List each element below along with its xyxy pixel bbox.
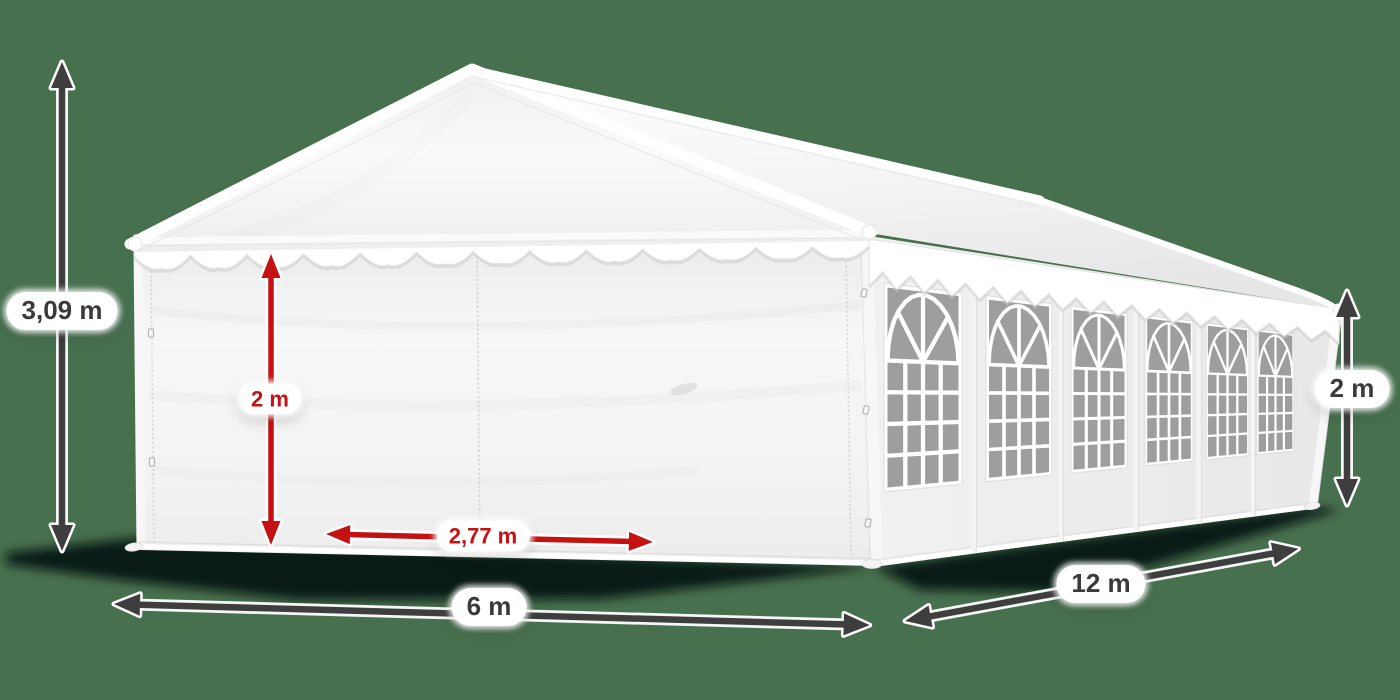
- window: [986, 296, 1052, 482]
- window: [884, 283, 962, 492]
- window: [1071, 306, 1127, 473]
- mullion: [1259, 413, 1293, 414]
- tent-scene: [0, 0, 1400, 700]
- mullion: [1074, 418, 1125, 419]
- front-left-edge: [138, 247, 141, 548]
- window: [1257, 329, 1294, 455]
- mullion: [888, 422, 959, 424]
- label-side-height: 2 m: [1315, 370, 1390, 408]
- label-length: 12 m: [1056, 565, 1145, 603]
- window: [1206, 323, 1249, 460]
- eave-corner-cap: [862, 225, 876, 239]
- label-wall-height: 2 m: [239, 383, 301, 414]
- mullion: [989, 420, 1049, 422]
- mullion: [1147, 416, 1191, 417]
- mullion: [888, 392, 959, 393]
- window: [1145, 315, 1193, 466]
- label-total-height: 3,09 m: [7, 292, 118, 330]
- tent-dimensions-illustration: 3,09 m 2 m 2,77 m 6 m 12 m 2 m: [0, 0, 1400, 700]
- label-entrance-width: 2,77 m: [437, 520, 530, 551]
- eave-corner-cap: [128, 237, 142, 251]
- foot-flap: [862, 560, 882, 569]
- label-width: 6 m: [452, 588, 527, 626]
- mullion: [1208, 414, 1247, 415]
